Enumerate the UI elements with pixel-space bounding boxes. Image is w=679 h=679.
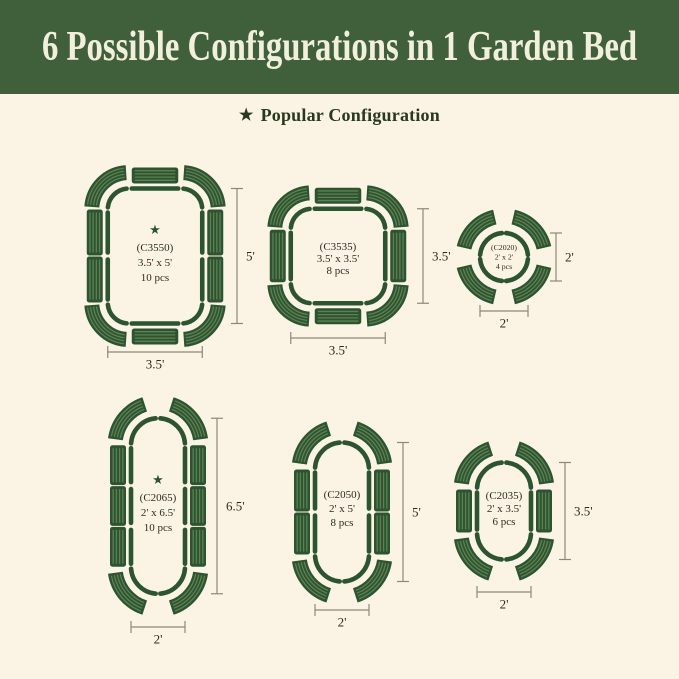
config-c3535-diagram: (C3535)3.5' x 3.5'8 pcs3.5'3.5' [270, 188, 451, 358]
bed-outline-segment [315, 556, 340, 581]
bed-outline-segment [506, 534, 531, 559]
width-dimension-label: 3.5' [146, 357, 165, 372]
panel-straight [110, 445, 126, 485]
configurations-diagram: ★(C3550)3.5' x 5'10 pcs5'3.5'(C3535)3.5'… [0, 0, 679, 679]
panel-straight [110, 527, 126, 567]
bed-outline-segment [366, 209, 385, 228]
width-dimension-label: 2' [500, 597, 509, 612]
height-dimension-label: 5' [246, 249, 255, 264]
config-size-label: 2' x 3.5' [487, 503, 521, 515]
bed-outline-segment [160, 569, 185, 594]
config-size-label: 3.5' x 5' [138, 257, 172, 269]
panel-straight [110, 486, 126, 526]
bed-outline-segment [477, 463, 502, 488]
popular-star-icon: ★ [149, 223, 161, 238]
panel-straight [132, 168, 179, 184]
config-pcs-label: 8 pcs [327, 265, 350, 277]
height-dimension-label: 3.5' [432, 249, 451, 264]
config-c2050-diagram: (C2050)2' x 5'8 pcs5'2' [294, 425, 421, 629]
config-pcs-label: 6 pcs [493, 516, 516, 528]
bed-outline-segment [131, 418, 156, 443]
panel-straight [190, 445, 206, 485]
config-c2065-diagram: ★(C2065)2' x 6.5'10 pcs6.5'2' [110, 401, 245, 647]
bed-outline-segment [344, 556, 369, 581]
config-code-label: (C2050) [324, 489, 361, 501]
height-dimension-label: 3.5' [574, 504, 593, 519]
popular-star-icon: ★ [152, 473, 164, 488]
bed-outline-segment [291, 209, 310, 228]
dimension-annotations: 3.5'2' [477, 463, 593, 612]
panel-straight [536, 490, 552, 533]
config-pcs-label: 4 pcs [496, 262, 512, 271]
config-pcs-label: 10 pcs [144, 522, 172, 534]
config-code-label: (C2020) [491, 243, 517, 252]
width-dimension-label: 2' [338, 615, 347, 630]
config-size-label: 2' x 5' [329, 503, 355, 515]
bed-outline-segment [131, 569, 156, 594]
config-c2035-diagram: (C2035)2' x 3.5'6 pcs3.5'2' [456, 445, 593, 611]
panel-straight [374, 513, 390, 555]
bed-outline-segment [183, 189, 202, 208]
config-size-label: 2' x 6.5' [141, 507, 175, 519]
bed-outline-segment [506, 463, 531, 488]
config-size-label: 2' x 2' [495, 253, 514, 262]
panel-straight [207, 257, 223, 303]
panel-straight [207, 210, 223, 256]
width-dimension-label: 2' [500, 316, 509, 331]
panel-straight [315, 308, 362, 324]
config-pcs-label: 10 pcs [141, 272, 169, 284]
panel-straight [190, 527, 206, 567]
panel-straight [132, 329, 179, 345]
bed-outline-segment [366, 284, 385, 303]
height-dimension-label: 2' [565, 250, 574, 265]
panel-straight [190, 486, 206, 526]
panel-straight [294, 513, 310, 555]
config-code-label: (C2065) [140, 492, 177, 504]
bed-outline-segment [108, 189, 127, 208]
dimension-annotations: 5'3.5' [108, 189, 255, 372]
bed-outline-segment [315, 443, 340, 468]
config-pcs-label: 8 pcs [331, 517, 354, 529]
bed-outline-segment [183, 305, 202, 324]
width-dimension-label: 3.5' [329, 343, 348, 358]
config-c2020-diagram: (C2020)2' x 2'4 pcs2'2' [460, 213, 574, 330]
bed-outline-segment [344, 443, 369, 468]
config-c3550-diagram: ★(C3550)3.5' x 5'10 pcs5'3.5' [87, 168, 255, 372]
height-dimension-label: 6.5' [226, 499, 245, 514]
config-code-label: (C3550) [137, 242, 174, 254]
bed-outline-segment [160, 418, 185, 443]
panel-straight [315, 188, 362, 204]
width-dimension-label: 2' [154, 632, 163, 647]
bed-outline-segment [291, 284, 310, 303]
config-code-label: (C3535) [320, 241, 357, 253]
height-dimension-label: 5' [412, 505, 421, 520]
dimension-annotations: 3.5'3.5' [291, 209, 451, 358]
panel-straight [87, 210, 103, 256]
panel-straight [270, 230, 286, 283]
panel-straight [374, 470, 390, 512]
bed-outline-segment [108, 305, 127, 324]
bed-outline-segment [477, 534, 502, 559]
infographic-canvas: 6 Possible Configurations in 1 Garden Be… [0, 0, 679, 679]
config-size-label: 3.5' x 3.5' [317, 253, 359, 265]
panel-straight [294, 470, 310, 512]
config-code-label: (C2035) [486, 490, 523, 502]
panel-straight [456, 490, 472, 533]
panel-straight [87, 257, 103, 303]
panel-straight [390, 230, 406, 283]
